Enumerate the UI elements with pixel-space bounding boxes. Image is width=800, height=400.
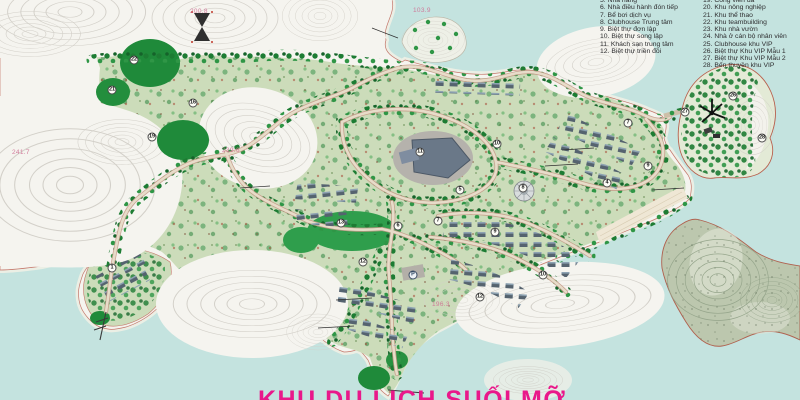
parking-marker: P (409, 271, 418, 280)
legend-item: 26. Biệt thự Khu VIP Mẫu 1 (703, 48, 787, 55)
legend-item: 22. Khu teambuilding (703, 19, 787, 26)
elevation-label: 196.3 (432, 301, 450, 308)
map-marker-1: 1 (108, 264, 117, 273)
legend-item: 8. Clubhouse Trung tâm (600, 19, 678, 26)
map-title: KHU DU LỊCH SUỐI MỠ (258, 386, 566, 400)
map-marker-4: 4 (603, 179, 612, 188)
map-marker-11: 11 (416, 148, 425, 157)
map-marker-9: 9 (491, 228, 500, 237)
map-marker-28: 28 (758, 134, 767, 143)
legend-item: 10. Biệt thự song lập (600, 33, 678, 40)
map-marker-12: 12 (476, 293, 485, 302)
map-marker-7: 7 (434, 217, 443, 226)
map-marker-10: 10 (493, 140, 502, 149)
hotel-complex (393, 131, 473, 185)
map-marker-22: 22 (130, 56, 139, 65)
site-plan-graphic (0, 0, 800, 400)
site-plan-image: 5. Nhà hàng6. Nhà điều hành đón tiếp7. B… (0, 0, 800, 400)
map-marker-13: 13 (337, 219, 346, 228)
legend-item: 6. Nhà điều hành đón tiếp (600, 4, 678, 11)
map-marker-21: 21 (108, 86, 117, 95)
map-marker-19: 19 (148, 133, 157, 142)
elevation-label: 241.7 (12, 149, 30, 156)
legend-item: 28. Bến thuyền khu VIP (703, 62, 787, 69)
legend-item: 7. Bể bơi dịch vụ (600, 12, 678, 19)
legend-column-1: 5. Nhà hàng6. Nhà điều hành đón tiếp7. B… (600, 0, 678, 55)
map-marker-10: 10 (539, 271, 548, 280)
map-marker-26: 26 (729, 92, 738, 101)
elevation-label: 239.6 (222, 147, 240, 154)
map-marker-5: 5 (456, 186, 465, 195)
map-marker-9: 9 (644, 162, 653, 171)
legend-item: 21. Khu thể thao (703, 12, 787, 19)
map-marker-27: 27 (681, 108, 690, 117)
map-marker-7: 7 (624, 119, 633, 128)
map-marker-6: 6 (394, 222, 403, 231)
elevation-label: 200.8 (190, 8, 208, 15)
legend-item: 11. Khách sạn trung tâm (600, 41, 678, 48)
legend-column-2: 19. Công viên đá20. Khu nông nghiệp21. K… (703, 0, 787, 70)
elevation-label: 103.9 (413, 7, 431, 14)
legend-item: 25. Clubhouse khu VIP (703, 41, 787, 48)
map-marker-8: 8 (519, 184, 528, 193)
legend-item: 24. Nhà ở cán bộ nhân viên (703, 33, 787, 40)
legend-item: 20. Khu nông nghiệp (703, 4, 787, 11)
legend-item: 12. Biệt thự triền đồi (600, 48, 678, 55)
legend-item: 9. Biệt thự đơn lập (600, 26, 678, 33)
map-marker-12: 12 (359, 258, 368, 267)
map-marker-16: 16 (189, 99, 198, 108)
